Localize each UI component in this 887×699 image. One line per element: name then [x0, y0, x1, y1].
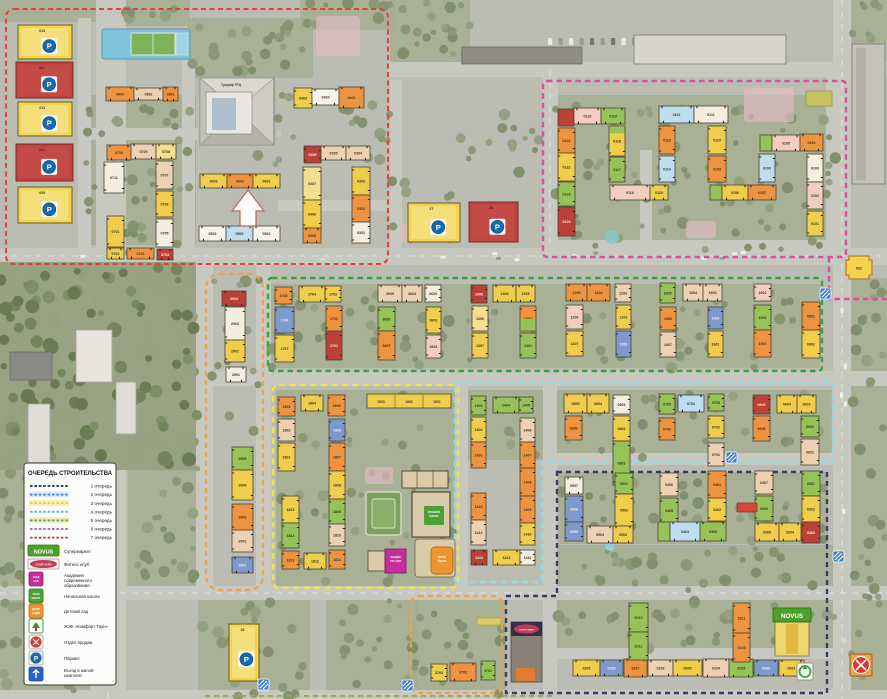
svg-text:0801: 0801 — [167, 92, 175, 96]
svg-text:1810: 1810 — [333, 533, 341, 537]
svg-text:009: 009 — [39, 191, 45, 195]
svg-text:0106: 0106 — [731, 191, 739, 195]
svg-text:1305: 1305 — [475, 292, 483, 296]
svg-text:1002: 1002 — [759, 316, 767, 320]
svg-text:012: 012 — [39, 66, 45, 70]
svg-text:1410: 1410 — [524, 532, 532, 536]
svg-text:комплекс: комплекс — [64, 673, 83, 678]
svg-text:0706: 0706 — [161, 202, 169, 206]
svg-text:0702: 0702 — [112, 252, 120, 256]
svg-text:0802: 0802 — [145, 92, 153, 96]
svg-text:2002: 2002 — [239, 539, 247, 543]
svg-text:Паркинг: Паркинг — [64, 656, 81, 661]
svg-text:1303: 1303 — [522, 292, 530, 296]
svg-text:АКАД: АКАД — [33, 576, 40, 579]
svg-text:0704: 0704 — [161, 253, 169, 257]
svg-text:1601: 1601 — [712, 342, 720, 346]
svg-text:ШКОЛА: ШКОЛА — [32, 597, 41, 600]
svg-text:0507: 0507 — [570, 484, 578, 488]
svg-text:1802: 1802 — [283, 428, 291, 432]
svg-text:1603: 1603 — [709, 291, 717, 295]
svg-text:NOVUS: NOVUS — [781, 613, 803, 620]
svg-text:ДИТЯЧ: ДИТЯЧ — [438, 556, 447, 559]
svg-text:2001: 2001 — [239, 563, 247, 567]
svg-text:0113: 0113 — [663, 138, 671, 142]
svg-text:СПОРТ ЛАЙФ: СПОРТ ЛАЙФ — [35, 564, 51, 567]
svg-text:1203: 1203 — [619, 291, 627, 295]
svg-text:P: P — [244, 655, 249, 664]
svg-text:1001: 1001 — [759, 291, 767, 295]
svg-text:0210: 0210 — [738, 646, 746, 650]
svg-text:0801: 0801 — [618, 461, 626, 465]
svg-text:1207: 1207 — [571, 342, 579, 346]
svg-text:2003: 2003 — [239, 515, 247, 519]
svg-text:1705: 1705 — [280, 294, 288, 298]
svg-text:1607: 1607 — [664, 343, 672, 347]
svg-text:0901: 0901 — [807, 314, 815, 318]
svg-text:0302: 0302 — [807, 507, 815, 511]
svg-text:1408: 1408 — [524, 480, 532, 484]
svg-text:0211: 0211 — [738, 616, 746, 620]
svg-text:0706: 0706 — [663, 427, 671, 431]
svg-text:1304: 1304 — [501, 292, 509, 296]
svg-text:0403: 0403 — [299, 96, 307, 100]
svg-text:P: P — [47, 42, 52, 51]
svg-text:3603: 3603 — [429, 292, 437, 296]
svg-text:0804: 0804 — [594, 402, 602, 406]
svg-text:0711: 0711 — [110, 176, 118, 180]
svg-text:3701: 3701 — [484, 669, 492, 673]
svg-text:0605: 0605 — [758, 403, 766, 407]
svg-text:0501: 0501 — [263, 232, 271, 236]
svg-text:1206: 1206 — [571, 315, 579, 319]
svg-text:1701: 1701 — [330, 344, 338, 348]
svg-text:0401: 0401 — [348, 96, 356, 100]
svg-text:3607: 3607 — [383, 344, 391, 348]
svg-text:0305: 0305 — [763, 530, 771, 534]
svg-text:2901: 2901 — [232, 373, 240, 377]
svg-text:2903: 2903 — [231, 322, 239, 326]
svg-text:1813: 1813 — [287, 558, 295, 562]
svg-text:0105: 0105 — [782, 141, 790, 145]
svg-text:0306: 0306 — [760, 507, 768, 511]
svg-text:0806: 0806 — [570, 426, 578, 430]
svg-text:0307: 0307 — [760, 481, 768, 485]
svg-text:0603: 0603 — [210, 179, 218, 183]
svg-text:1703: 1703 — [329, 292, 337, 296]
svg-text:28: 28 — [489, 206, 493, 210]
svg-text:0703: 0703 — [712, 401, 720, 405]
svg-text:0402: 0402 — [322, 95, 330, 99]
svg-text:1301: 1301 — [524, 344, 532, 348]
svg-text:1804: 1804 — [308, 401, 316, 405]
svg-text:0124: 0124 — [563, 220, 571, 224]
svg-text:ЗРАЗКОВА: ЗРАЗКОВА — [428, 511, 441, 514]
svg-text:1405: 1405 — [522, 403, 530, 407]
svg-text:002: 002 — [856, 267, 862, 271]
svg-text:0709: 0709 — [140, 150, 148, 154]
svg-text:0123: 0123 — [563, 192, 571, 196]
svg-text:0206: 0206 — [657, 666, 665, 670]
svg-text:0121: 0121 — [563, 139, 571, 143]
svg-text:1805: 1805 — [333, 404, 341, 408]
svg-text:1806: 1806 — [333, 428, 341, 432]
svg-text:0702: 0702 — [712, 425, 720, 429]
svg-text:0104: 0104 — [808, 141, 816, 145]
svg-text:0503: 0503 — [619, 533, 627, 537]
svg-text:1407: 1407 — [524, 453, 532, 457]
svg-text:0102: 0102 — [811, 194, 819, 198]
svg-text:0701: 0701 — [712, 453, 720, 457]
svg-text:1902: 1902 — [405, 400, 413, 404]
svg-text:3601: 3601 — [430, 345, 438, 349]
svg-text:1706: 1706 — [281, 318, 289, 322]
svg-text:1809: 1809 — [333, 510, 341, 514]
svg-text:0304: 0304 — [786, 530, 794, 534]
svg-text:0307: 0307 — [308, 182, 316, 186]
svg-text:0902: 0902 — [807, 342, 815, 346]
svg-text:1412: 1412 — [503, 556, 511, 560]
svg-text:1704: 1704 — [308, 292, 316, 296]
svg-text:0504: 0504 — [596, 533, 604, 537]
svg-text:0213: 0213 — [635, 616, 643, 620]
svg-text:1306: 1306 — [476, 317, 484, 321]
svg-text:0116: 0116 — [626, 191, 634, 195]
svg-text:0606: 0606 — [758, 427, 766, 431]
svg-text:1801: 1801 — [283, 455, 291, 459]
svg-text:0202: 0202 — [762, 666, 770, 670]
svg-text:3605: 3605 — [386, 292, 394, 296]
svg-text:Фитнес клуб: Фитнес клуб — [64, 562, 90, 567]
svg-text:Tриумф ТРЦ: Tриумф ТРЦ — [221, 83, 242, 87]
svg-text:САДОК: САДОК — [438, 560, 447, 563]
svg-text:САДОК: САДОК — [32, 612, 41, 615]
svg-text:0205: 0205 — [684, 666, 692, 670]
svg-text:1808: 1808 — [333, 483, 341, 487]
svg-text:Отдел продаж: Отдел продаж — [64, 640, 93, 645]
svg-text:3604: 3604 — [408, 292, 416, 296]
svg-text:ШКОЛА: ШКОЛА — [429, 515, 438, 518]
svg-text:0301: 0301 — [807, 482, 815, 486]
svg-text:ДИТЯЧ: ДИТЯЧ — [32, 609, 40, 611]
svg-text:0109: 0109 — [713, 167, 721, 171]
svg-text:0120: 0120 — [584, 114, 592, 118]
svg-text:3602: 3602 — [430, 318, 438, 322]
svg-text:0302: 0302 — [357, 207, 365, 211]
svg-text:0305: 0305 — [330, 151, 338, 155]
svg-text:0505: 0505 — [570, 530, 578, 534]
svg-text:ЗРАЗК: ЗРАЗК — [32, 593, 40, 596]
svg-text:1901: 1901 — [433, 400, 441, 404]
svg-text:3703: 3703 — [435, 671, 443, 675]
svg-text:0201: 0201 — [788, 666, 796, 670]
svg-text:0101: 0101 — [811, 222, 819, 226]
svg-text:ОСВ: ОСВ — [33, 580, 39, 583]
svg-text:0405: 0405 — [665, 509, 673, 513]
svg-text:P: P — [47, 80, 52, 89]
svg-text:0710: 0710 — [115, 151, 123, 155]
svg-text:1414: 1414 — [475, 531, 483, 535]
svg-text:P: P — [47, 163, 52, 172]
svg-text:АКАДЕМ: АКАДЕМ — [390, 556, 400, 559]
svg-text:0403: 0403 — [709, 530, 717, 534]
svg-text:0303: 0303 — [357, 179, 365, 183]
svg-text:4 очередь: 4 очередь — [91, 509, 113, 514]
svg-text:0111: 0111 — [707, 113, 715, 117]
svg-text:010: 010 — [39, 148, 45, 152]
svg-text:0115: 0115 — [655, 191, 663, 195]
svg-text:1003: 1003 — [759, 342, 767, 346]
svg-text:1411: 1411 — [524, 556, 532, 560]
svg-text:0803: 0803 — [116, 92, 124, 96]
svg-text:P: P — [34, 656, 39, 663]
svg-text:0604: 0604 — [783, 402, 791, 406]
svg-text:0601: 0601 — [806, 450, 814, 454]
svg-text:1702: 1702 — [330, 317, 338, 321]
svg-text:0703: 0703 — [137, 252, 145, 256]
svg-text:0118: 0118 — [613, 139, 621, 143]
svg-text:013: 013 — [39, 29, 45, 33]
svg-text:Супермаркет: Супермаркет — [64, 549, 91, 554]
svg-text:1811: 1811 — [333, 558, 341, 562]
svg-text:0301: 0301 — [357, 231, 365, 235]
svg-text:1201: 1201 — [620, 342, 628, 346]
svg-text:0309: 0309 — [309, 153, 317, 157]
svg-text:3606: 3606 — [383, 317, 391, 321]
svg-text:3702: 3702 — [459, 670, 467, 674]
svg-text:0502: 0502 — [620, 508, 628, 512]
svg-text:0708: 0708 — [162, 150, 170, 154]
svg-text:0207: 0207 — [632, 666, 640, 670]
svg-text:2904: 2904 — [230, 297, 238, 301]
svg-text:0705: 0705 — [161, 231, 169, 235]
svg-text:1403: 1403 — [475, 404, 483, 408]
svg-text:0701: 0701 — [112, 230, 120, 234]
svg-text:0707: 0707 — [161, 173, 169, 177]
svg-text:1803: 1803 — [283, 405, 291, 409]
svg-text:0502: 0502 — [236, 232, 244, 236]
svg-text:Начальная школа: Начальная школа — [64, 594, 100, 599]
svg-text:0803: 0803 — [618, 403, 626, 407]
svg-text:1202: 1202 — [620, 315, 628, 319]
svg-text:0404: 0404 — [681, 530, 689, 534]
svg-text:0602: 0602 — [806, 425, 814, 429]
svg-text:0308: 0308 — [308, 234, 316, 238]
svg-text:1 очередь: 1 очередь — [91, 484, 113, 489]
svg-text:0303: 0303 — [807, 531, 815, 535]
svg-text:1204: 1204 — [595, 291, 603, 295]
svg-text:0306: 0306 — [308, 212, 316, 216]
svg-text:0304: 0304 — [354, 151, 362, 155]
svg-text:27: 27 — [429, 207, 433, 211]
svg-text:0110: 0110 — [713, 138, 721, 142]
svg-text:3 очередь: 3 очередь — [91, 501, 113, 506]
svg-text:2 очередь: 2 очередь — [91, 492, 113, 497]
svg-text:1812: 1812 — [311, 559, 319, 563]
svg-text:5 очередь: 5 очередь — [91, 518, 113, 523]
svg-text:011: 011 — [39, 106, 45, 110]
svg-text:7 очередь: 7 очередь — [91, 535, 113, 540]
svg-text:1602: 1602 — [712, 316, 720, 320]
svg-text:1406: 1406 — [524, 428, 532, 432]
svg-text:0208: 0208 — [608, 666, 616, 670]
svg-text:1409: 1409 — [524, 508, 532, 512]
svg-text:1903: 1903 — [377, 400, 385, 404]
svg-text:P: P — [47, 119, 52, 128]
svg-text:0204: 0204 — [712, 666, 720, 670]
svg-text:ЖЭК «Комфорт Таун»: ЖЭК «Комфорт Таун» — [64, 624, 109, 629]
svg-text:1401: 1401 — [475, 453, 483, 457]
svg-text:0402: 0402 — [713, 508, 721, 512]
svg-text:P: P — [47, 205, 52, 214]
svg-text:СПОРТ ЛАЙФ: СПОРТ ЛАЙФ — [519, 629, 534, 632]
svg-text:P: P — [495, 222, 500, 231]
svg-text:0209: 0209 — [583, 666, 591, 670]
svg-text:0704: 0704 — [687, 402, 695, 406]
svg-text:0401: 0401 — [713, 483, 721, 487]
svg-text:0506: 0506 — [570, 507, 578, 511]
svg-text:ОЧЕРЕДЬ СТРОИТЕЛЬСТВА: ОЧЕРЕДЬ СТРОИТЕЛЬСТВА — [28, 471, 113, 477]
svg-text:0117: 0117 — [613, 168, 621, 172]
svg-text:0503: 0503 — [209, 232, 217, 236]
svg-text:СУЧ ОСВ: СУЧ ОСВ — [390, 560, 401, 563]
svg-text:2902: 2902 — [231, 349, 239, 353]
svg-text:1413: 1413 — [475, 556, 483, 560]
svg-text:P: P — [436, 223, 441, 232]
svg-text:1307: 1307 — [476, 344, 484, 348]
svg-text:1814: 1814 — [287, 534, 295, 538]
svg-text:0100: 0100 — [763, 166, 771, 170]
svg-text:0119: 0119 — [609, 114, 617, 118]
svg-text:0212: 0212 — [635, 644, 643, 648]
svg-text:6 очередь: 6 очередь — [91, 527, 113, 532]
svg-text:0802: 0802 — [618, 427, 626, 431]
svg-text:1807: 1807 — [333, 455, 341, 459]
svg-text:0603: 0603 — [803, 402, 811, 406]
svg-text:0203: 0203 — [737, 666, 745, 670]
svg-text:0107: 0107 — [758, 191, 766, 195]
svg-text:0112: 0112 — [673, 113, 681, 117]
svg-text:1605: 1605 — [664, 291, 672, 295]
svg-text:0406: 0406 — [665, 483, 673, 487]
svg-text:0602: 0602 — [236, 179, 244, 183]
svg-text:0501: 0501 — [620, 482, 628, 486]
svg-text:0114: 0114 — [663, 167, 671, 171]
svg-text:1606: 1606 — [664, 317, 672, 321]
svg-text:33: 33 — [241, 628, 245, 632]
svg-text:1415: 1415 — [475, 505, 483, 509]
svg-text:1402: 1402 — [475, 428, 483, 432]
svg-text:0122: 0122 — [563, 165, 571, 169]
svg-text:0705: 0705 — [663, 402, 671, 406]
svg-text:1404: 1404 — [502, 403, 510, 407]
svg-text:1707: 1707 — [281, 347, 289, 351]
svg-text:2004: 2004 — [239, 483, 247, 487]
svg-text:0601: 0601 — [263, 179, 271, 183]
svg-text:1604: 1604 — [689, 291, 697, 295]
svg-text:0103: 0103 — [811, 166, 819, 170]
svg-text:0805: 0805 — [572, 402, 580, 406]
svg-text:NOVUS: NOVUS — [34, 550, 54, 556]
svg-text:2005: 2005 — [239, 457, 247, 461]
svg-text:1205: 1205 — [573, 291, 581, 295]
svg-text:1815: 1815 — [287, 508, 295, 512]
svg-text:образования: образования — [64, 583, 90, 588]
svg-text:Детский сад: Детский сад — [64, 609, 89, 614]
